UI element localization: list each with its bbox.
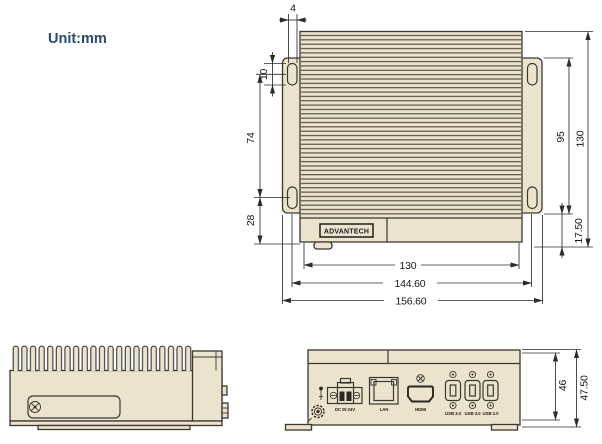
front-view: DC IN 24V LAN HDMI USB 3.0 [286, 350, 521, 430]
side-heatsink-fins [12, 346, 192, 372]
dc-power-label: DC IN 24V [335, 407, 355, 412]
dim-top-offset: 4 [290, 3, 296, 15]
unit-label: Unit:mm [48, 31, 107, 47]
dim-bottom-mid: 144.60 [395, 278, 426, 290]
dim-bottom-outer: 156.60 [396, 295, 427, 307]
front-view-dimensions: 46 47.50 [522, 350, 591, 428]
lan-label: LAN [380, 407, 389, 412]
front-left-foot [286, 425, 312, 431]
side-view [10, 346, 228, 430]
dim-right-outer: 130 [575, 130, 587, 147]
side-rear-connector [222, 386, 228, 418]
dim-front-inner: 46 [557, 380, 569, 392]
heatsink-fins [301, 33, 521, 218]
brand-logo: ADVANTECH [320, 224, 373, 237]
front-foot-bump [314, 242, 332, 249]
hdmi-label: HDMI [415, 407, 426, 412]
dim-bottom-inner: 130 [400, 260, 417, 272]
dim-front-outer: 47.50 [579, 375, 591, 401]
dim-left-lower: 28 [245, 215, 257, 227]
usb-3-label: USB 2.0 [483, 411, 500, 416]
usb-2-label: USB 3.0 [465, 411, 482, 416]
side-rear-block [193, 351, 223, 421]
dim-right-bottom: 17.50 [573, 218, 585, 244]
usb-1-label: USB 3.0 [445, 411, 462, 416]
side-base-plate [10, 421, 222, 426]
dimension-drawing: Unit:mm ADVANTECH 4 [0, 0, 602, 444]
top-view: ADVANTECH [283, 32, 543, 250]
front-right-foot [492, 425, 518, 431]
brand-logo-text: ADVANTECH [324, 229, 369, 236]
hdmi-connector-shape [408, 387, 433, 402]
dim-left-upper: 74 [245, 132, 257, 144]
dim-right-inner: 95 [555, 131, 567, 143]
side-base-lip [38, 426, 190, 430]
